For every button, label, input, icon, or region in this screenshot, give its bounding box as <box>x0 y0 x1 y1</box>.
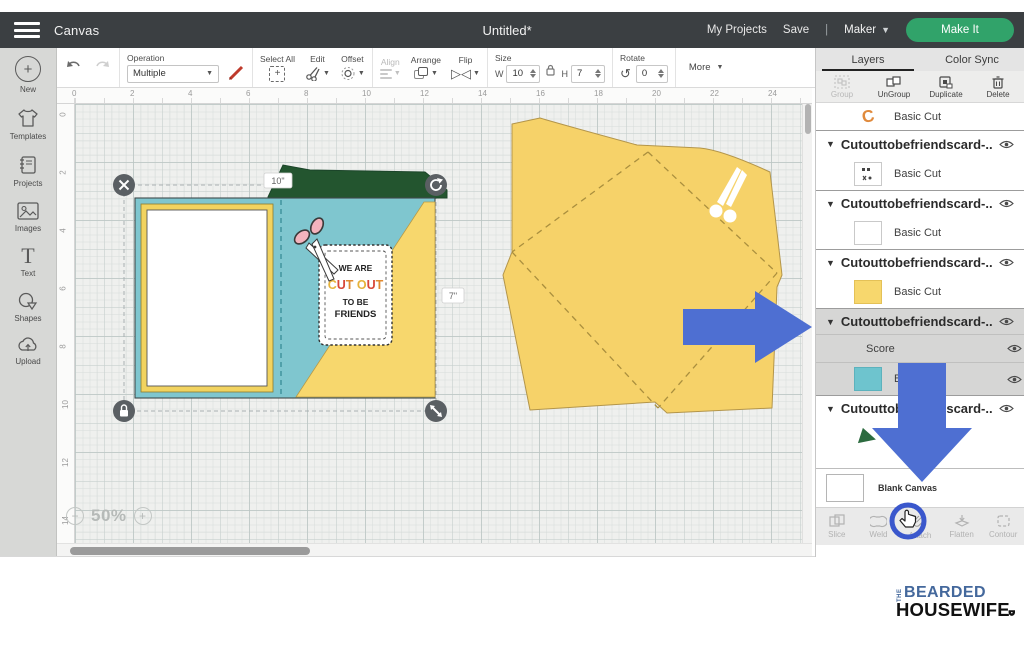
redo-icon[interactable] <box>93 59 112 76</box>
sidebar-item-label: Upload <box>15 357 40 366</box>
flatten-icon <box>954 514 970 528</box>
select-all-label: Select All <box>260 54 295 64</box>
width-value: 10 <box>512 68 523 79</box>
tag-line4-text: FRIENDS <box>335 309 377 320</box>
width-label: W <box>495 69 504 79</box>
layer-type-label: Basic Cut <box>894 286 941 298</box>
layer-type-label: Basic Cut <box>894 168 941 180</box>
layer-group-name: Cutouttobefriendscard-... <box>841 401 993 416</box>
image-icon <box>16 201 40 221</box>
arrange-label: Arrange <box>411 55 441 65</box>
more-label: More <box>689 62 711 73</box>
eye-visibility-icon[interactable] <box>999 258 1014 267</box>
ruler-tick: 10 <box>61 400 70 409</box>
ruler-tick: 0 <box>59 112 68 116</box>
logo-housewife: HOUSEWIFE <box>896 601 1010 620</box>
layer-group-row[interactable]: ▼ Cutouttobefriendscard-... <box>816 249 1024 275</box>
select-all-button[interactable]: Select All + <box>260 54 295 82</box>
layer-thumbnail <box>854 221 882 245</box>
eye-visibility-icon[interactable] <box>999 404 1014 413</box>
canvas-label: Canvas <box>54 23 99 38</box>
notebook-icon <box>17 154 39 176</box>
delete-button[interactable]: Delete <box>972 71 1024 102</box>
eye-visibility-icon[interactable] <box>1007 375 1022 384</box>
height-stepper[interactable] <box>595 69 601 78</box>
layer-row[interactable]: Basic Cut <box>816 275 1024 308</box>
attach-label: Attach <box>909 531 932 540</box>
sentiment-tag[interactable]: WE ARE CUT OUT TO BE FRIENDS <box>319 245 392 345</box>
tab-layers[interactable]: Layers <box>816 48 920 71</box>
my-projects-link[interactable]: My Projects <box>707 24 767 36</box>
layer-group-name: Cutouttobefriendscard-... <box>841 255 993 270</box>
layer-thumbnail <box>854 426 882 450</box>
project-title: Untitled* <box>483 23 532 38</box>
ruler-tick: 4 <box>59 228 68 232</box>
ruler-horizontal: 024681012141618202224 <box>57 88 812 104</box>
chevron-down-icon: ▼ <box>431 70 438 77</box>
align-button: Align ▼ <box>380 57 401 79</box>
ruler-tick: 24 <box>768 89 777 98</box>
group-label: Group <box>831 90 853 99</box>
layer-group-row[interactable]: ▼ Cutouttobefriendscard-... <box>816 131 1024 157</box>
layer-group-row[interactable]: ▼ Cutouttobefriendscard-... <box>816 308 1024 334</box>
ruler-tick: 14 <box>478 89 487 98</box>
green-triangle-thumb <box>858 427 878 447</box>
ruler-tick: 22 <box>710 89 719 98</box>
flatten-button[interactable]: Flatten <box>941 508 983 545</box>
more-button[interactable]: More ▼ <box>683 62 730 73</box>
group-button: Group <box>816 71 868 102</box>
ruler-tick: 12 <box>420 89 429 98</box>
chevron-down-icon[interactable]: ▼ <box>826 404 835 414</box>
scissors-glyph-thumb <box>860 166 876 182</box>
lock-handle[interactable] <box>113 400 135 422</box>
weld-icon <box>870 515 887 528</box>
sidebar-item-label: Images <box>15 224 41 233</box>
ruler-tick: 16 <box>536 89 545 98</box>
envelope-artwork[interactable] <box>503 118 782 413</box>
rotate-value: 0 <box>642 68 647 79</box>
layer-group-name: Cutouttobefriendscard-... <box>841 196 993 211</box>
edit-button[interactable]: Edit ▼ <box>305 54 330 81</box>
blank-canvas-label: Blank Canvas <box>878 483 937 493</box>
offset-icon <box>340 66 356 81</box>
eye-visibility-icon[interactable] <box>999 317 1014 326</box>
chevron-down-icon: ▼ <box>323 70 330 77</box>
duplicate-icon <box>938 75 954 89</box>
layer-type-label: Score <box>866 343 895 355</box>
zoom-in-button[interactable]: + <box>134 507 152 525</box>
horizontal-scrollbar-thumb[interactable] <box>70 547 310 555</box>
flip-button[interactable]: Flip ▷◁ ▼ <box>451 55 480 80</box>
ruler-tick: 8 <box>304 89 308 98</box>
sidebar-item-label: Shapes <box>14 314 41 323</box>
ungroup-icon <box>886 75 902 89</box>
sidebar-item-label: New <box>20 85 36 94</box>
width-stepper[interactable] <box>530 69 536 78</box>
operation-value: Multiple <box>133 68 166 79</box>
ungroup-button[interactable]: UnGroup <box>868 71 920 102</box>
contour-icon <box>996 514 1011 528</box>
align-label: Align <box>381 57 400 67</box>
offset-label: Offset <box>341 54 364 64</box>
flip-icon: ▷◁ <box>451 67 471 80</box>
cricut-design-space-window: Canvas Untitled* My Projects Save | Make… <box>0 0 1024 651</box>
layer-type-label: Basic Cut <box>894 111 941 123</box>
weld-button[interactable]: Weld <box>858 508 900 545</box>
logo-the: THE <box>897 594 903 602</box>
sidebar-item-label: Templates <box>10 132 46 141</box>
insert-sidebar: + New Templates Projects Images T Text S… <box>0 48 57 557</box>
layer-thumbnail: C <box>854 105 882 129</box>
sidebar-item-label: Text <box>21 269 36 278</box>
eye-visibility-icon[interactable] <box>999 140 1014 149</box>
layer-list: C Basic Cut ▼ Cutouttobefriendscard-... … <box>816 103 1024 468</box>
layer-type-label: Basic Cut <box>894 227 941 239</box>
blank-canvas-thumbnail <box>826 474 864 502</box>
top-bar: Canvas Untitled* My Projects Save | Make… <box>0 12 1024 48</box>
layer-row[interactable]: Basic Cut <box>816 216 1024 249</box>
ungroup-label: UnGroup <box>878 90 910 99</box>
flatten-label: Flatten <box>949 530 973 539</box>
canvas-artwork: WE ARE CUT OUT TO BE FRIENDS <box>75 104 812 557</box>
lock-ratio-icon[interactable] <box>545 64 556 76</box>
ruler-tick: 8 <box>59 344 68 348</box>
layer-row[interactable]: Score <box>816 334 1024 362</box>
operation-select[interactable]: Multiple ▼ <box>127 65 219 83</box>
tshirt-icon <box>16 107 40 129</box>
flip-label: Flip <box>459 55 473 65</box>
layer-type-label: Basic Cut <box>894 373 941 385</box>
layers-panel: Layers Color Sync Group UnGroup Duplicat… <box>815 48 1024 557</box>
offset-button[interactable]: Offset ▼ <box>340 54 365 81</box>
layer-tools-bar: Slice Weld Attach Flatten Contour <box>816 507 1024 545</box>
layer-type-label: Basic Cut <box>894 432 941 444</box>
rotate-stepper[interactable] <box>658 69 664 78</box>
size-label: Size <box>495 53 605 63</box>
plus-circle-icon: + <box>15 56 41 82</box>
rotate-handle[interactable] <box>425 174 447 196</box>
layer-group-row[interactable]: ▼ Cutouttobefriendscard-... <box>816 190 1024 216</box>
zoom-level: 50% <box>91 506 127 526</box>
slice-button[interactable]: Slice <box>816 508 858 545</box>
layer-actions: Group UnGroup Duplicate Delete <box>816 71 1024 103</box>
rotate-input[interactable]: 0 <box>636 65 668 83</box>
hamburger-menu-icon[interactable] <box>14 22 40 38</box>
selection-width-chip: 10" <box>264 173 292 188</box>
selected-layer-group: ▼ Cutouttobefriendscard-... Score Basic … <box>816 308 1024 395</box>
tag-line1-text: WE ARE <box>339 263 373 273</box>
arrange-button[interactable]: Arrange ▼ <box>411 55 441 80</box>
machine-selector[interactable]: Maker ▼ <box>844 24 890 36</box>
layer-row[interactable]: C Basic Cut <box>816 103 1024 131</box>
ruler-tick: 4 <box>188 89 192 98</box>
zoom-control: − 50% + <box>66 506 152 526</box>
deselect-handle[interactable] <box>113 174 135 196</box>
ruler-tick: 2 <box>59 170 68 174</box>
sidebar-item-upload[interactable]: Upload <box>15 336 40 366</box>
ruler-tick: 2 <box>130 89 134 98</box>
sidebar-item-images[interactable]: Images <box>15 201 41 233</box>
group-icon <box>834 75 850 89</box>
text-icon: T <box>21 246 34 266</box>
shapes-icon <box>17 291 39 311</box>
ruler-tick: 18 <box>594 89 603 98</box>
lock-icon <box>120 410 128 417</box>
chevron-down-icon[interactable]: ▼ <box>826 258 835 268</box>
layer-thumbnail <box>854 162 882 186</box>
contour-button[interactable]: Contour <box>982 508 1024 545</box>
chevron-down-icon: ▼ <box>358 70 365 77</box>
weld-label: Weld <box>869 530 887 539</box>
arrange-icon <box>414 67 429 80</box>
select-all-icon: + <box>269 66 285 82</box>
attach-icon <box>912 514 927 529</box>
chevron-down-icon[interactable]: ▼ <box>826 317 835 327</box>
width-input[interactable]: 10 <box>506 65 540 83</box>
save-link[interactable]: Save <box>783 24 809 36</box>
pen-color-icon[interactable] <box>227 65 245 83</box>
operation-label: Operation <box>127 53 245 63</box>
eye-visibility-icon[interactable] <box>999 199 1014 208</box>
height-value: 7 <box>577 68 582 79</box>
selection-height-value: 7" <box>449 291 457 301</box>
sidebar-item-shapes[interactable]: Shapes <box>14 291 41 323</box>
sidebar-item-label: Projects <box>14 179 43 188</box>
ruler-tick: 6 <box>59 286 68 290</box>
layer-group-row[interactable]: ▼ Cutouttobefriendscard-... <box>816 395 1024 421</box>
layer-group-name: Cutouttobefriendscard-... <box>841 137 993 152</box>
delete-label: Delete <box>986 90 1009 99</box>
contour-label: Contour <box>989 530 1017 539</box>
ruler-tick: 20 <box>652 89 661 98</box>
sidebar-item-new[interactable]: + New <box>15 56 41 94</box>
trash-icon <box>991 75 1005 89</box>
blank-canvas-row[interactable]: Blank Canvas <box>816 468 1024 507</box>
rotate-label: Rotate <box>620 53 668 63</box>
sidebar-item-text[interactable]: T Text <box>21 246 36 278</box>
horizontal-scrollbar[interactable] <box>57 543 812 557</box>
attach-button[interactable]: Attach <box>899 508 941 545</box>
selection-width-value: 10" <box>271 176 284 186</box>
ruler-tick: 10 <box>362 89 371 98</box>
layer-row[interactable]: Basic Cut <box>816 421 1024 454</box>
edit-label: Edit <box>310 54 325 64</box>
layer-row[interactable]: Basic Cut <box>816 362 1024 395</box>
vertical-scrollbar-thumb[interactable] <box>805 104 811 134</box>
bearded-housewife-logo: THE BEARDED HOUSEWIFE <box>896 585 1016 620</box>
rotate-icon: ↺ <box>620 67 631 80</box>
panel-tabs: Layers Color Sync <box>816 48 1024 71</box>
make-it-button[interactable]: Make It <box>906 18 1014 42</box>
upload-cloud-icon <box>16 336 40 354</box>
edit-toolbar: Operation Multiple ▼ Select All + Edit <box>57 48 815 88</box>
card-green-flap[interactable] <box>268 165 447 198</box>
align-icon <box>380 69 392 79</box>
sidebar-item-projects[interactable]: Projects <box>14 154 43 188</box>
chevron-down-icon: ▼ <box>206 70 213 77</box>
chevron-down-icon[interactable]: ▼ <box>826 199 835 209</box>
height-input[interactable]: 7 <box>571 65 605 83</box>
selection-height-chip: 7" <box>442 288 464 303</box>
slice-icon <box>829 514 845 528</box>
tag-line3-text: TO BE <box>343 297 369 307</box>
layer-thumbnail <box>854 367 882 391</box>
orange-shape-thumb: C <box>860 107 876 126</box>
zoom-out-button[interactable]: − <box>66 507 84 525</box>
resize-handle[interactable] <box>425 400 447 422</box>
beard-icon <box>1008 607 1016 620</box>
chevron-down-icon[interactable]: ▼ <box>826 139 835 149</box>
edit-icon <box>305 66 321 81</box>
undo-icon[interactable] <box>64 59 83 76</box>
layer-group-name: Cutouttobefriendscard-... <box>841 314 993 329</box>
slice-label: Slice <box>828 530 845 539</box>
chevron-down-icon: ▼ <box>717 64 724 71</box>
layer-row[interactable]: Basic Cut <box>816 157 1024 190</box>
card-white-panel <box>147 210 267 386</box>
machine-name: Maker <box>844 24 876 36</box>
ruler-tick: 0 <box>72 89 76 98</box>
ruler-tick: 12 <box>61 458 70 467</box>
sidebar-item-templates[interactable]: Templates <box>10 107 46 141</box>
tag-line2-text: CUT OUT <box>328 278 384 292</box>
vertical-scrollbar[interactable] <box>802 104 812 543</box>
height-label: H <box>561 69 568 79</box>
ruler-vertical: 02468101214 <box>57 104 75 557</box>
chevron-down-icon: ▼ <box>881 25 890 35</box>
duplicate-button[interactable]: Duplicate <box>920 71 972 102</box>
chevron-down-icon: ▼ <box>394 70 401 77</box>
ruler-tick: 6 <box>246 89 250 98</box>
tab-color-sync[interactable]: Color Sync <box>920 48 1024 71</box>
eye-visibility-icon[interactable] <box>1007 344 1022 353</box>
layer-thumbnail <box>854 280 882 304</box>
duplicate-label: Duplicate <box>929 90 962 99</box>
chevron-down-icon: ▼ <box>473 70 480 77</box>
topbar-divider: | <box>825 24 828 36</box>
